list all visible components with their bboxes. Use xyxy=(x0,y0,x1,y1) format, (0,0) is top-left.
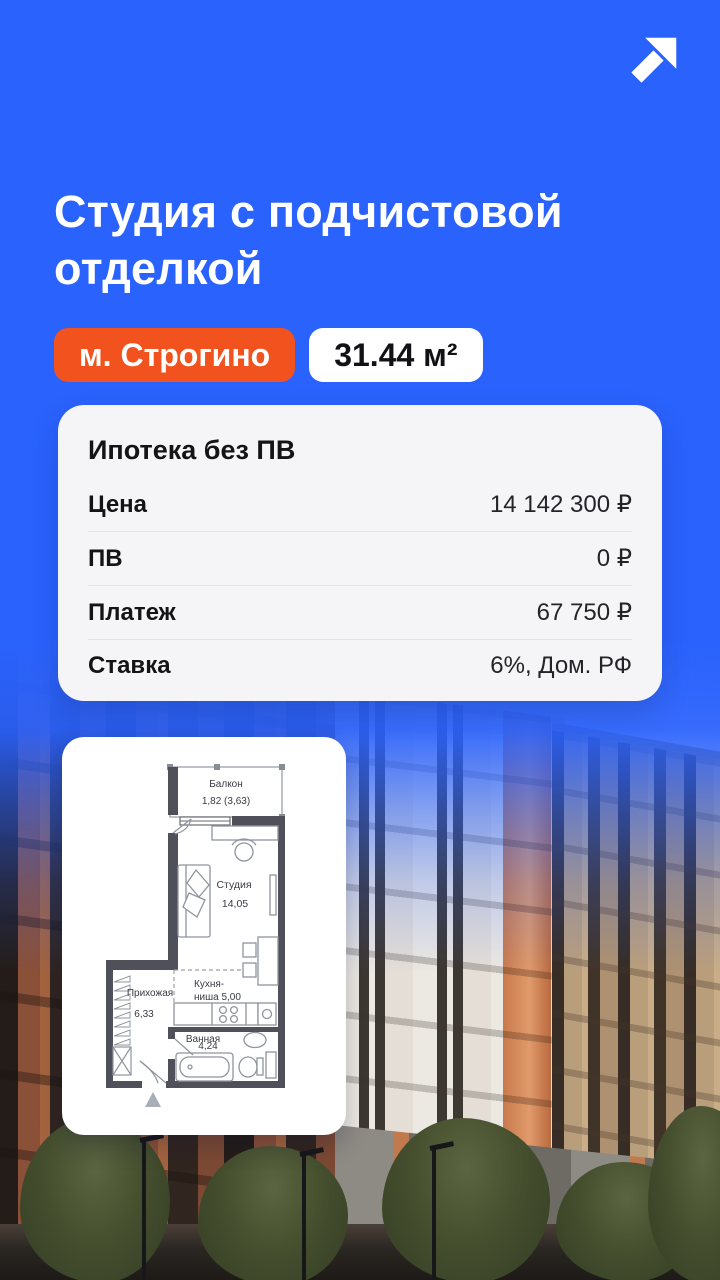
mortgage-row-price: Цена 14 142 300 ₽ xyxy=(88,478,632,531)
studio-area: 14,05 xyxy=(222,898,248,910)
hallway-label: Прихожая xyxy=(127,988,173,999)
mortgage-card-title: Ипотека без ПВ xyxy=(88,435,632,466)
kitchen-label-line2: ниша 5,00 xyxy=(194,992,241,1003)
kitchen-label-line1: Кухня- xyxy=(194,979,224,990)
metro-badge: м. Строгино xyxy=(54,328,295,382)
post-title: Студия с подчистовой отделкой xyxy=(54,184,629,297)
mortgage-card: Ипотека без ПВ Цена 14 142 300 ₽ ПВ 0 ₽ … xyxy=(58,405,662,701)
row-label: Цена xyxy=(88,491,147,519)
badge-row: м. Строгино 31.44 м² xyxy=(54,328,483,382)
hallway-area: 6,33 xyxy=(134,1009,154,1020)
balcony-label: Балкон xyxy=(209,779,243,790)
entrance-arrow xyxy=(145,1092,161,1107)
row-label: Ставка xyxy=(88,652,171,680)
studio-label: Студия xyxy=(216,879,251,891)
balcony-outline xyxy=(170,767,282,817)
row-label: ПВ xyxy=(88,545,123,573)
row-value: 67 750 ₽ xyxy=(537,598,632,627)
balcony-area: 1,82 (3,63) xyxy=(202,796,250,807)
row-label: Платеж xyxy=(88,599,176,627)
row-value: 6%, Дом. РФ xyxy=(490,652,632,680)
real-estate-post: Студия с подчистовой отделкой м. Строгин… xyxy=(0,0,720,1280)
mortgage-row-rate: Ставка 6%, Дом. РФ xyxy=(88,639,632,692)
mortgage-row-downpayment: ПВ 0 ₽ xyxy=(88,531,632,585)
floor-plan-drawing: Балкон 1,82 (3,63) Студия 14,05 Кухня- н… xyxy=(62,737,346,1135)
floor-plan-card: Балкон 1,82 (3,63) Студия 14,05 Кухня- н… xyxy=(62,737,346,1135)
balcony-corner-markers xyxy=(167,764,285,820)
arrow-up-right-icon[interactable] xyxy=(622,30,684,92)
row-value: 0 ₽ xyxy=(597,544,632,573)
mortgage-row-payment: Платеж 67 750 ₽ xyxy=(88,585,632,639)
area-badge: 31.44 м² xyxy=(309,328,482,382)
bathroom-area: 4,24 xyxy=(198,1041,218,1052)
row-value: 14 142 300 ₽ xyxy=(490,490,632,519)
